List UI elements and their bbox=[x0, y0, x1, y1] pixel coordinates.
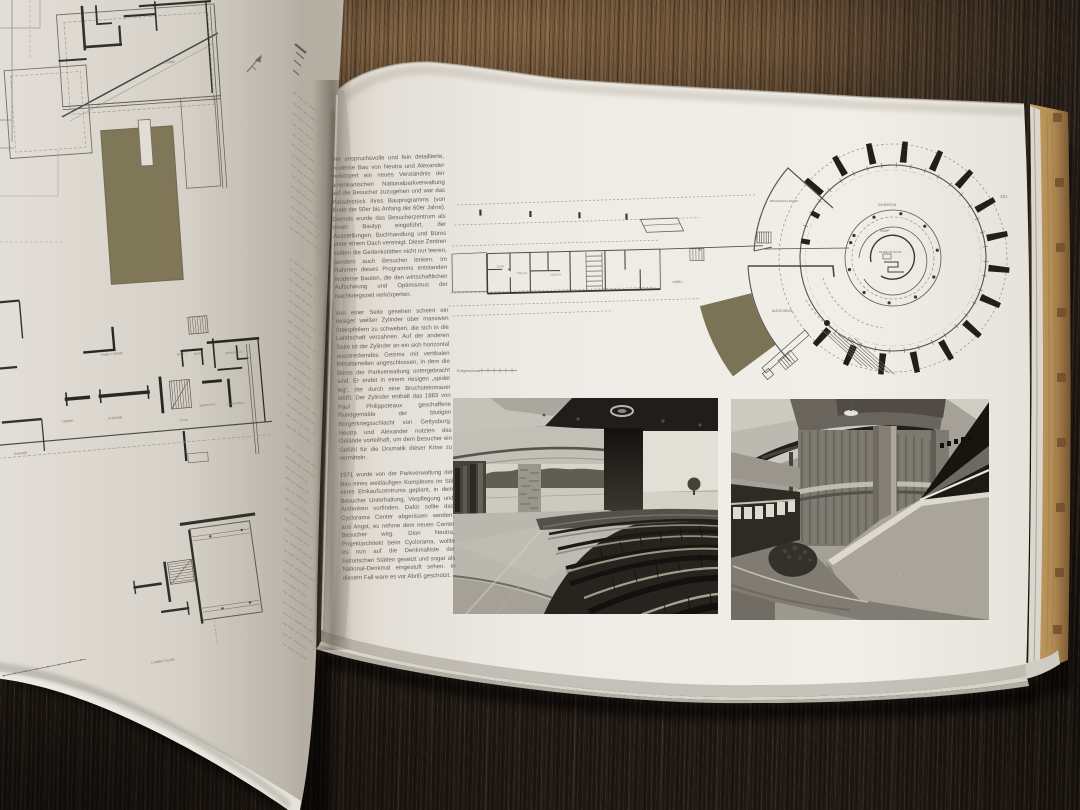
svg-text:MUSEUM SHOP: MUSEUM SHOP bbox=[879, 250, 902, 254]
svg-text:LIVING: LIVING bbox=[164, 60, 176, 65]
svg-text:TOILETS: TOILETS bbox=[516, 271, 527, 275]
svg-text:STOR.: STOR. bbox=[180, 418, 189, 423]
svg-text:391: 391 bbox=[1000, 194, 1008, 199]
svg-text:RAMP: RAMP bbox=[880, 229, 889, 233]
svg-text:STOR: STOR bbox=[497, 264, 504, 268]
svg-text:AUDITORIUM: AUDITORIUM bbox=[772, 309, 792, 313]
svg-text:LOBBY: LOBBY bbox=[672, 280, 682, 284]
svg-text:Erdgeschoss: Erdgeschoss bbox=[457, 368, 480, 373]
svg-text:TOILETS: TOILETS bbox=[550, 273, 561, 277]
svg-text:MECHANICAL ROOM: MECHANICAL ROOM bbox=[770, 199, 798, 203]
svg-text:EXHIBITION: EXHIBITION bbox=[878, 203, 897, 207]
